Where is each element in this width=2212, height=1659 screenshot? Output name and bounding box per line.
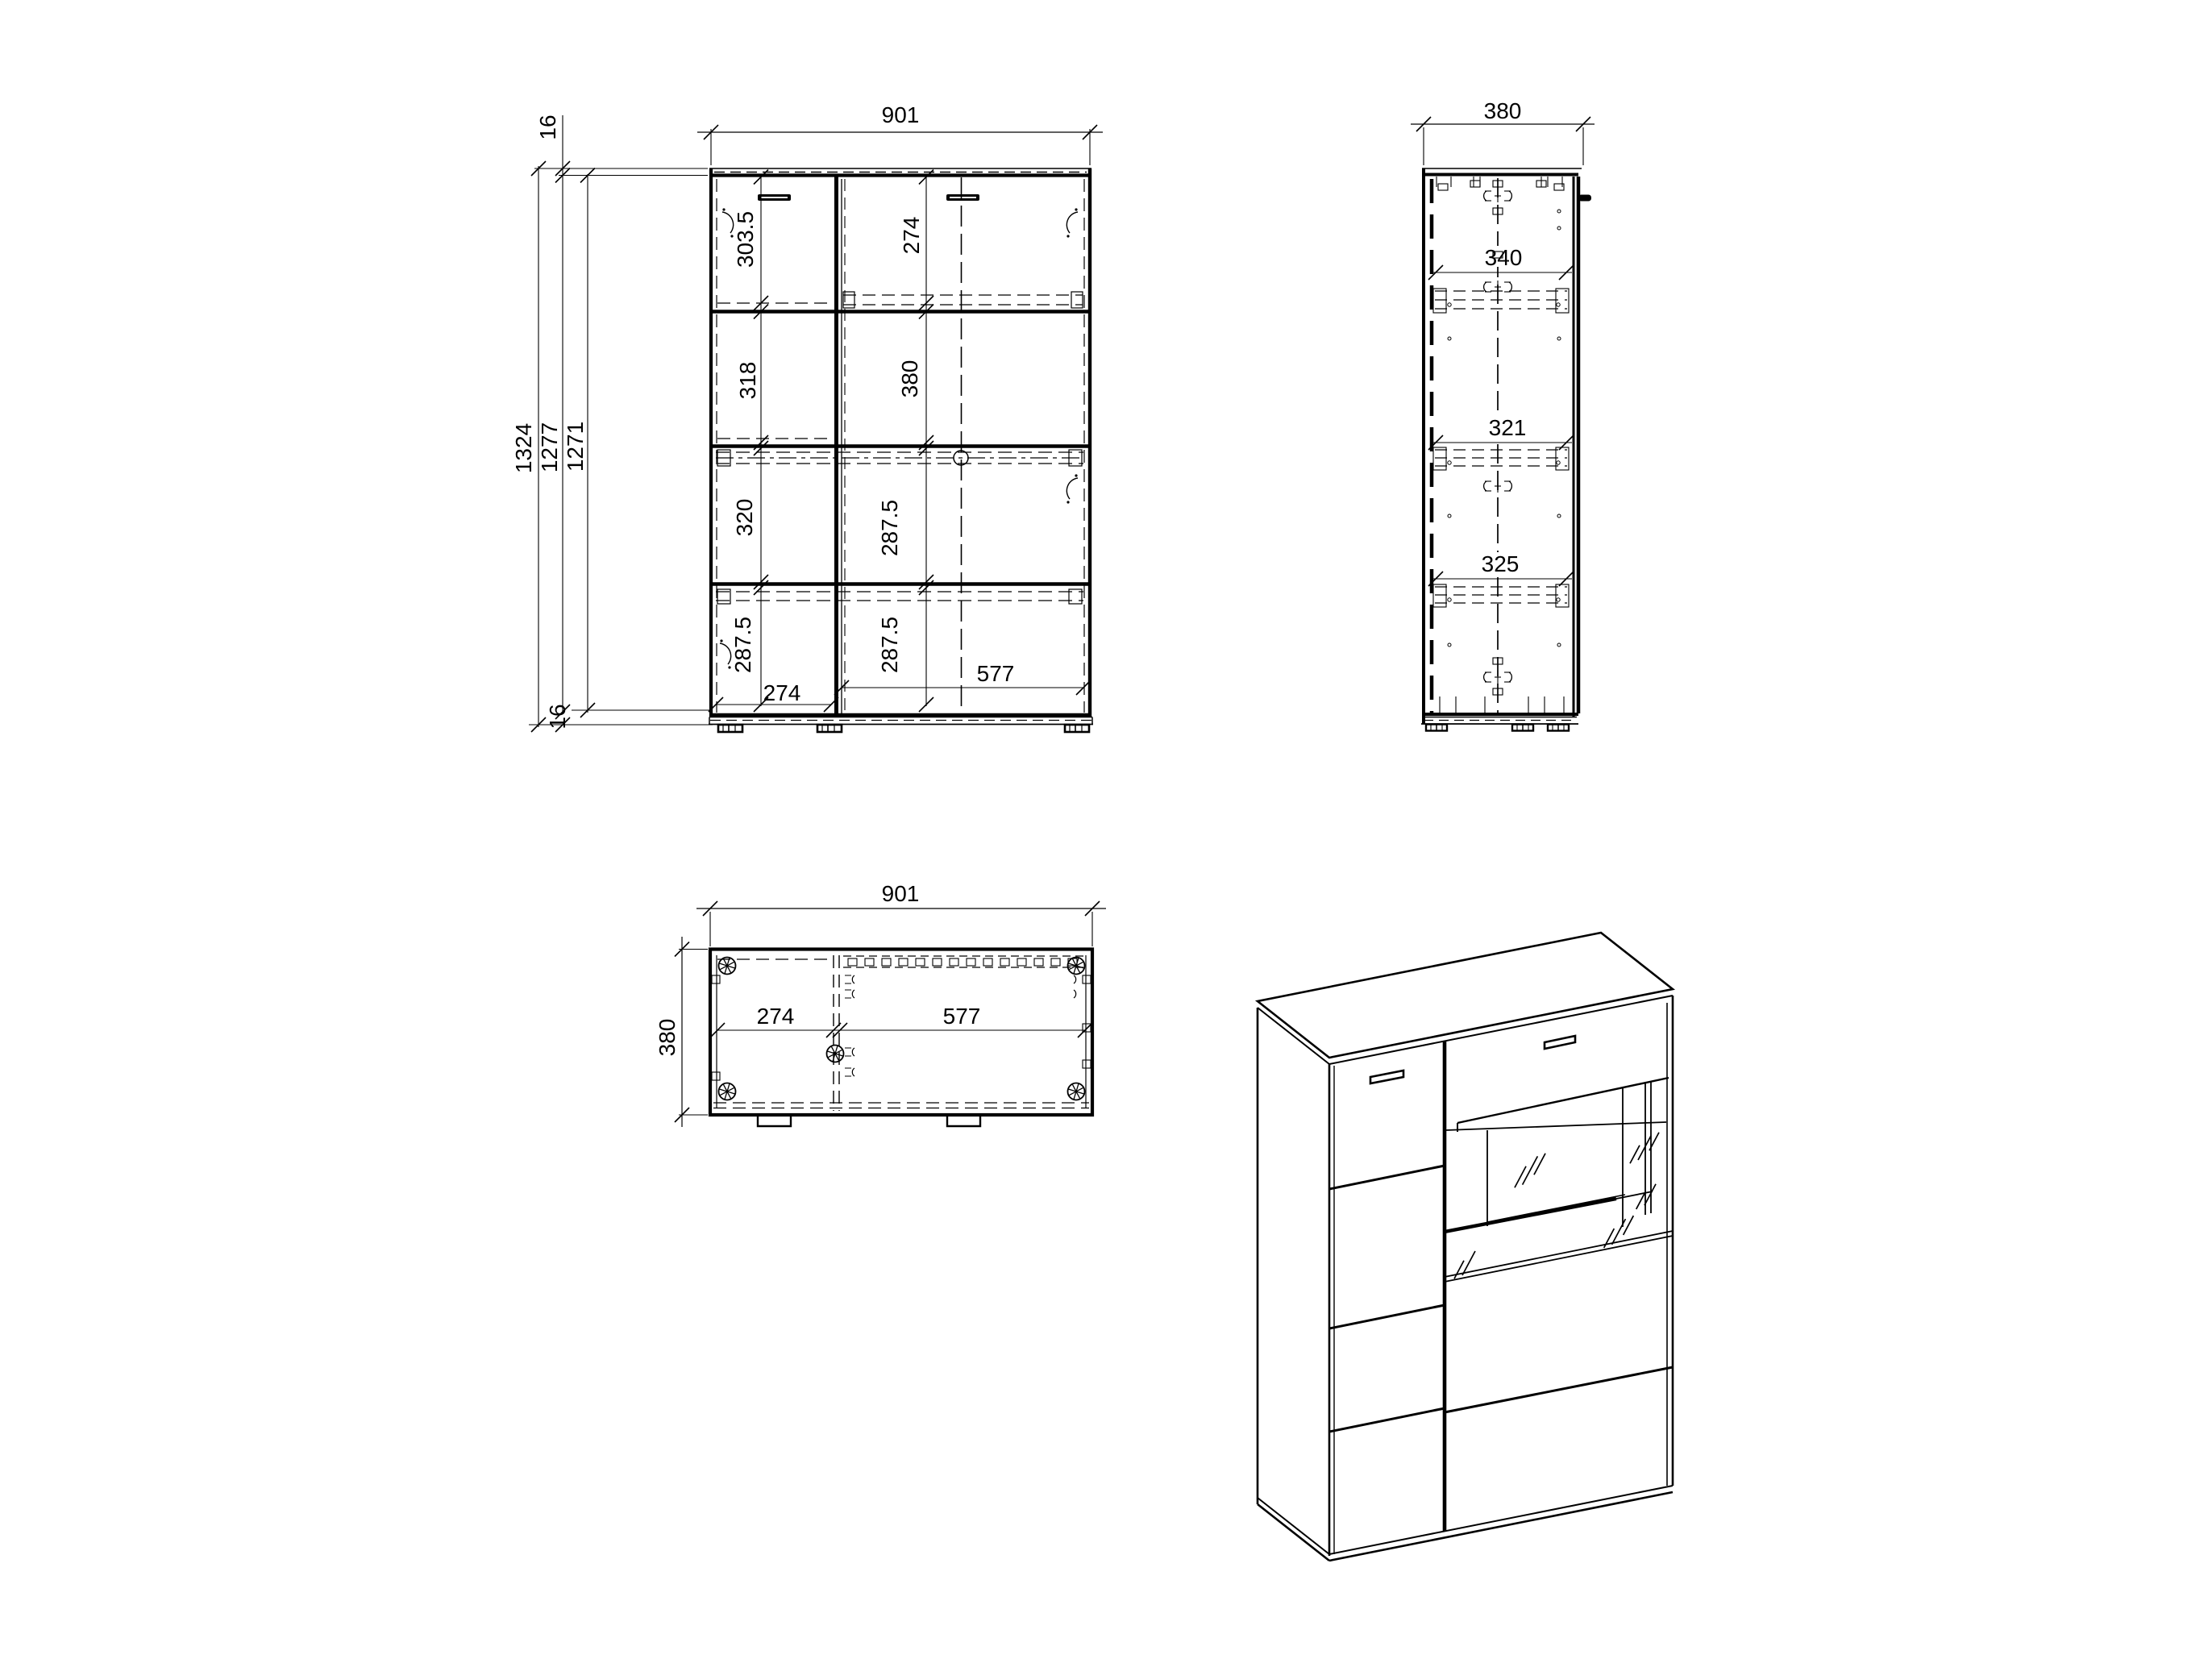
- svg-text:380: 380: [897, 360, 922, 398]
- svg-text:901: 901: [882, 881, 920, 906]
- svg-text:287.5: 287.5: [877, 617, 902, 673]
- svg-text:274: 274: [763, 680, 801, 705]
- svg-text:1277: 1277: [537, 422, 562, 472]
- svg-text:274: 274: [757, 1004, 795, 1029]
- svg-text:380: 380: [1484, 98, 1522, 123]
- svg-text:16: 16: [545, 704, 570, 729]
- svg-text:318: 318: [735, 362, 760, 400]
- svg-text:1271: 1271: [563, 422, 588, 472]
- svg-text:1324: 1324: [511, 423, 536, 473]
- svg-text:274: 274: [899, 217, 924, 255]
- svg-text:340: 340: [1485, 245, 1523, 270]
- svg-text:380: 380: [655, 1019, 680, 1057]
- svg-text:287.5: 287.5: [877, 500, 902, 556]
- svg-text:320: 320: [732, 499, 757, 537]
- svg-text:303.5: 303.5: [733, 211, 758, 268]
- svg-text:577: 577: [977, 661, 1015, 686]
- svg-text:321: 321: [1489, 415, 1527, 440]
- svg-text:287.5: 287.5: [730, 617, 755, 673]
- svg-text:577: 577: [943, 1004, 981, 1029]
- svg-text:325: 325: [1482, 551, 1520, 576]
- svg-text:16: 16: [535, 114, 560, 139]
- svg-text:901: 901: [882, 102, 920, 127]
